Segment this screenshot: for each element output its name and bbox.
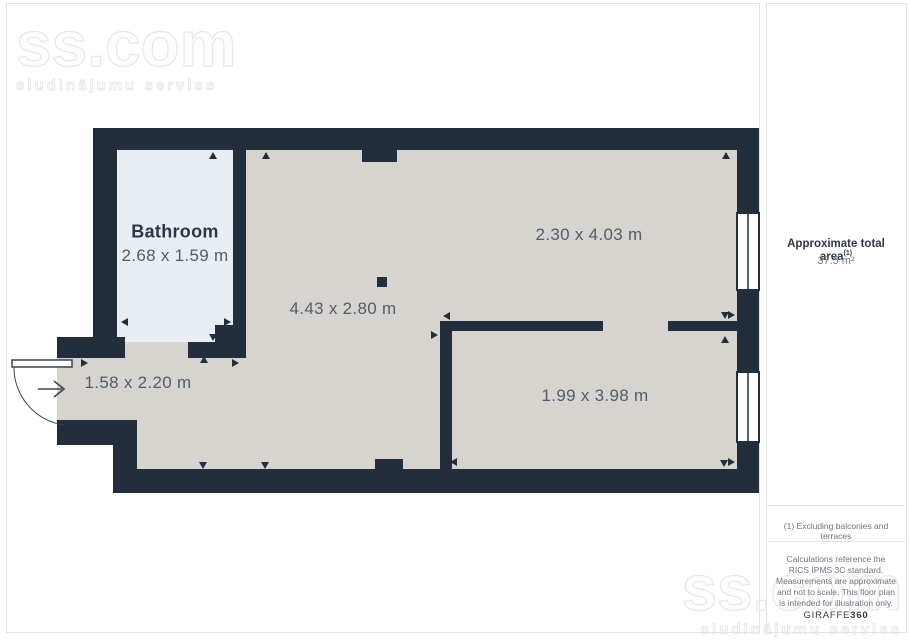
window-icon — [737, 213, 759, 290]
hallway-dims-label: 1.58 x 2.20 m — [85, 373, 192, 393]
top-right-room-dims-label: 2.30 x 4.03 m — [536, 225, 643, 245]
giraffe360-logo-name: GIRAFFE — [803, 610, 850, 621]
area-footnote: (1) Excluding balconies and terraces — [772, 521, 900, 541]
sidebar-divider — [767, 541, 905, 542]
floorplan-page: ss.com sludinājumu serviss ss.com sludin… — [0, 0, 910, 643]
disclaimer-text: Calculations reference the RICS IPMS 3C … — [776, 554, 896, 608]
bathroom-name-label: Bathroom — [131, 222, 218, 243]
bottom-right-room-dims-label: 1.99 x 3.98 m — [542, 386, 649, 406]
floorplan-svg — [0, 0, 910, 643]
window-icon — [737, 372, 759, 442]
total-area-value: 37.5 m² — [770, 255, 902, 267]
sidebar-divider — [767, 505, 905, 506]
giraffe360-logo-number: 360 — [850, 610, 868, 621]
living-room-dims-label: 4.43 x 2.80 m — [290, 299, 397, 319]
giraffe360-logo: GIRAFFE360 — [770, 610, 902, 621]
bathroom-dims-label: 2.68 x 1.59 m — [122, 246, 229, 266]
